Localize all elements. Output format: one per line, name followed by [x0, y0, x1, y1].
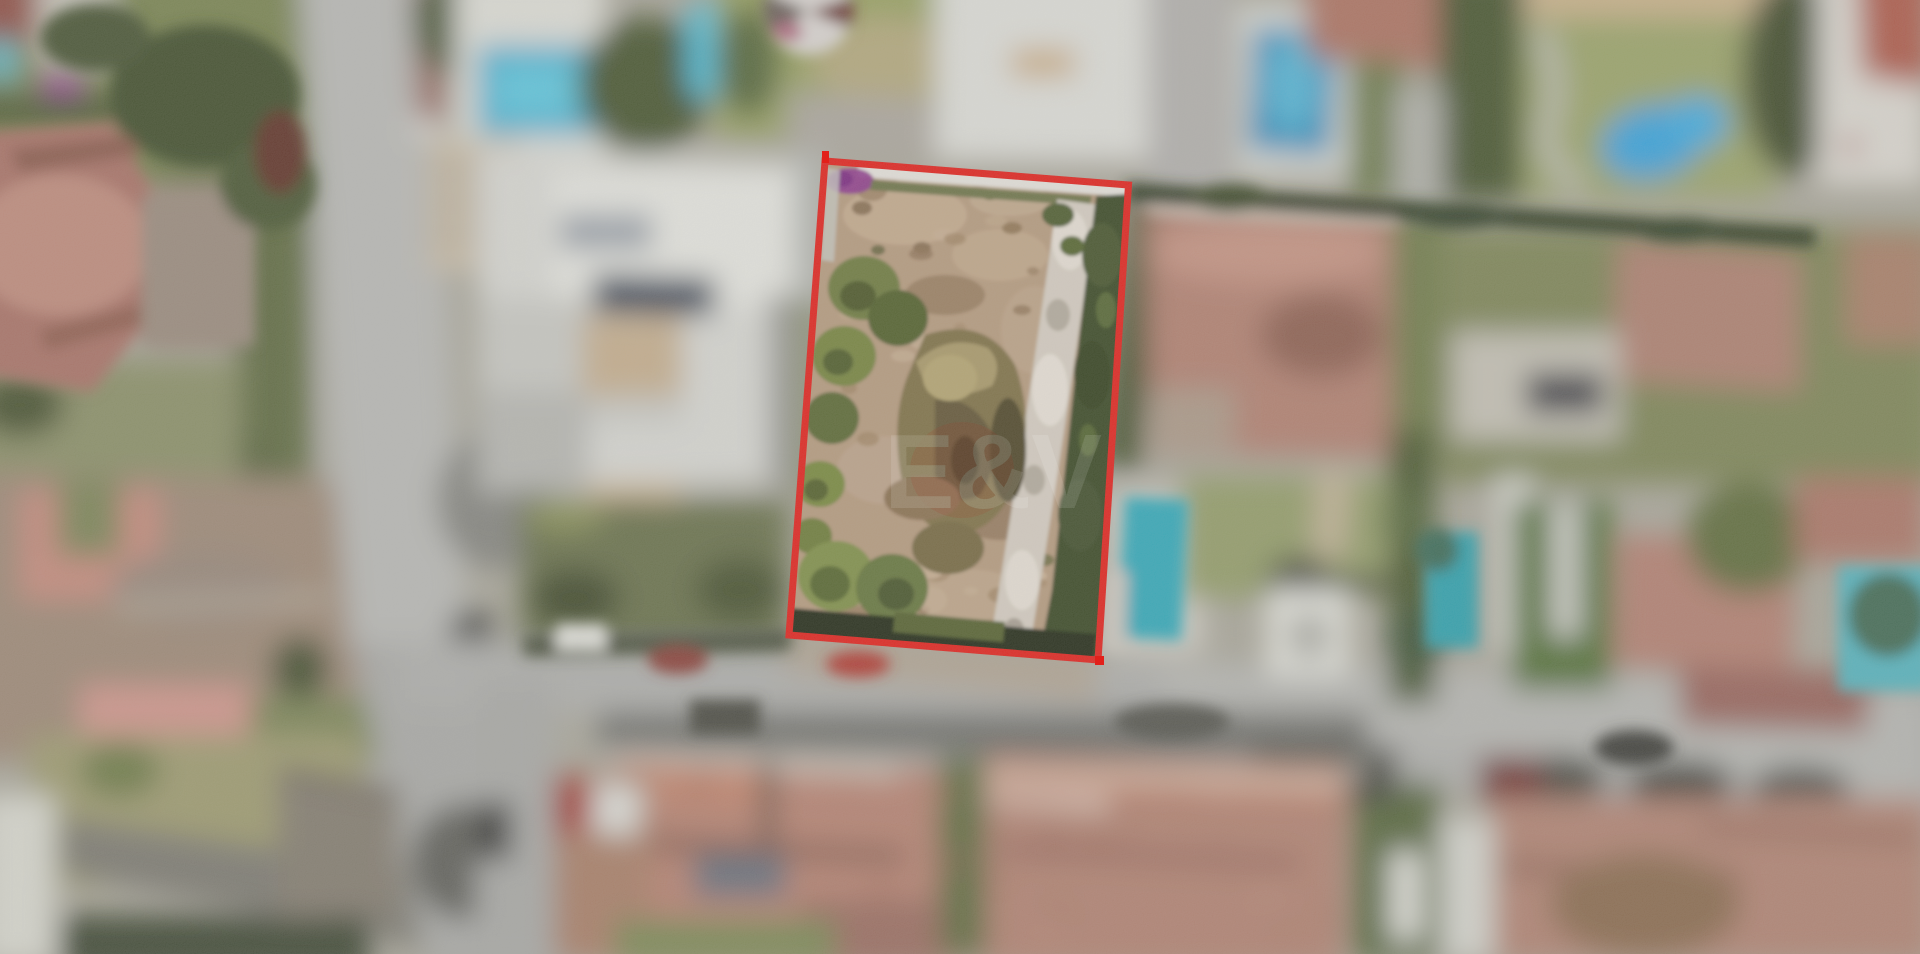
svg-text:E&V: E&V [884, 413, 1102, 531]
